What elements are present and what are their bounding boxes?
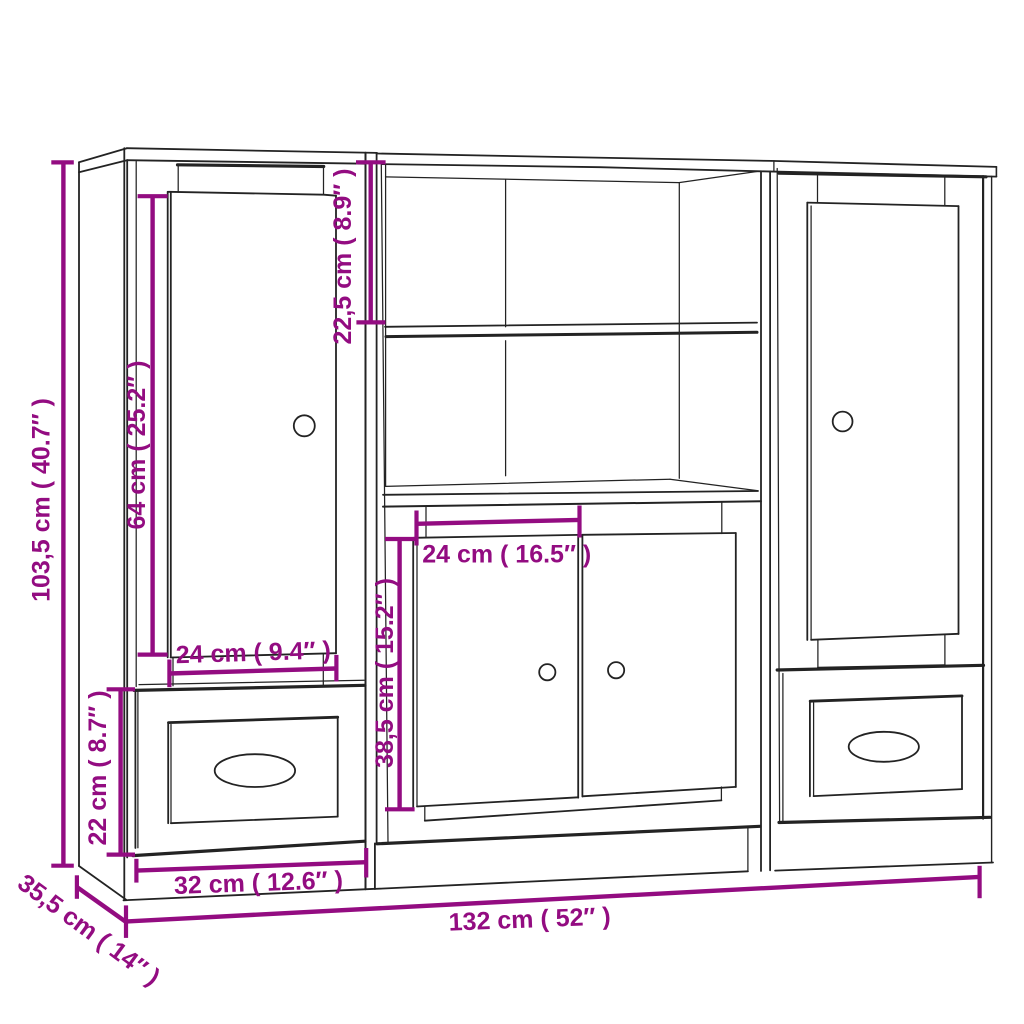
svg-text:38,5 cm ( 15.2″ ): 38,5 cm ( 15.2″ ) — [371, 578, 399, 768]
svg-text:32 cm ( 12.6″ ): 32 cm ( 12.6″ ) — [173, 866, 343, 900]
svg-text:24 cm ( 9.4″ ): 24 cm ( 9.4″ ) — [175, 636, 331, 669]
svg-text:64 cm ( 25.2″ ): 64 cm ( 25.2″ ) — [123, 360, 151, 529]
svg-text:22,5 cm ( 8.9″ ): 22,5 cm ( 8.9″ ) — [329, 169, 357, 345]
svg-text:24 cm ( 16.5″ ): 24 cm ( 16.5″ ) — [422, 540, 591, 568]
svg-text:103,5 cm ( 40.7″ ): 103,5 cm ( 40.7″ ) — [28, 398, 56, 602]
svg-text:22 cm ( 8.7″ ): 22 cm ( 8.7″ ) — [84, 690, 112, 845]
